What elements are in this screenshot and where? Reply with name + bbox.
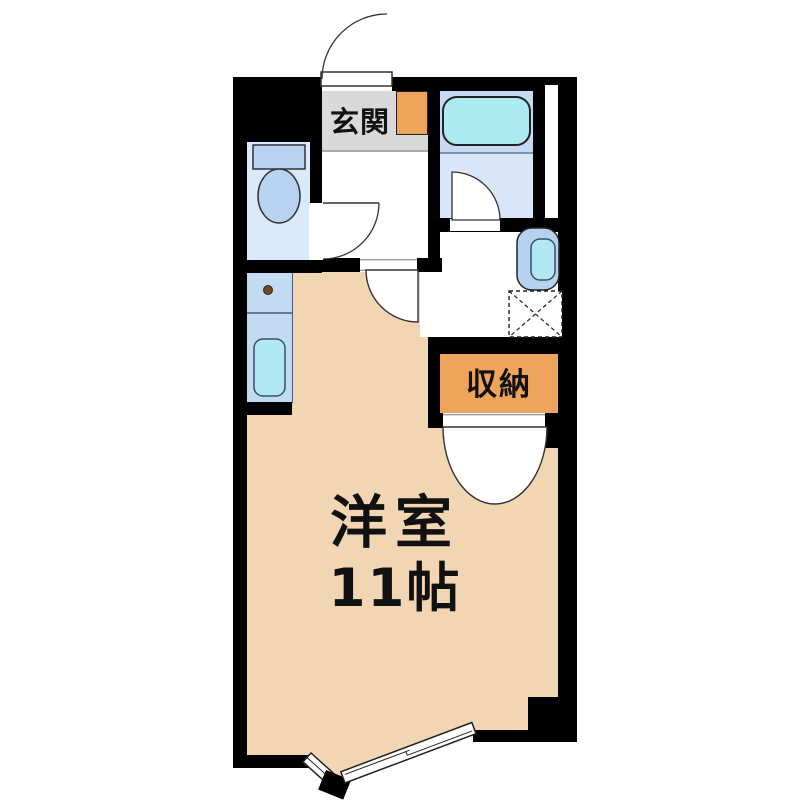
room-door-opening (360, 259, 417, 271)
toilet-tank (253, 145, 305, 169)
main-room-size: 11帖 (270, 556, 520, 622)
entrance-door-arc (322, 14, 387, 79)
bathroom-door-opening (450, 219, 500, 231)
balcony-sliding-window (341, 723, 476, 783)
floor-plan: 玄関 収納 洋室 11帖 (0, 0, 800, 800)
bathroom-door (452, 172, 500, 220)
toilet-door-swing (323, 203, 379, 259)
main-room-name: 洋室 (270, 490, 520, 556)
room-door (366, 270, 418, 322)
burner-dot (264, 286, 273, 295)
washbasin-bowl (531, 239, 555, 280)
entrance-door (321, 72, 392, 86)
closet-door-opening (443, 414, 545, 427)
detail-layer (0, 0, 800, 800)
genkan-label: 玄関 (324, 100, 396, 144)
kitchen-sink (254, 339, 285, 396)
storage-label: 収納 (440, 361, 558, 409)
toilet-bowl (258, 169, 300, 223)
toilet-door-opening (309, 203, 323, 260)
bathtub (443, 97, 530, 145)
main-room-label: 洋室 11帖 (270, 490, 520, 622)
